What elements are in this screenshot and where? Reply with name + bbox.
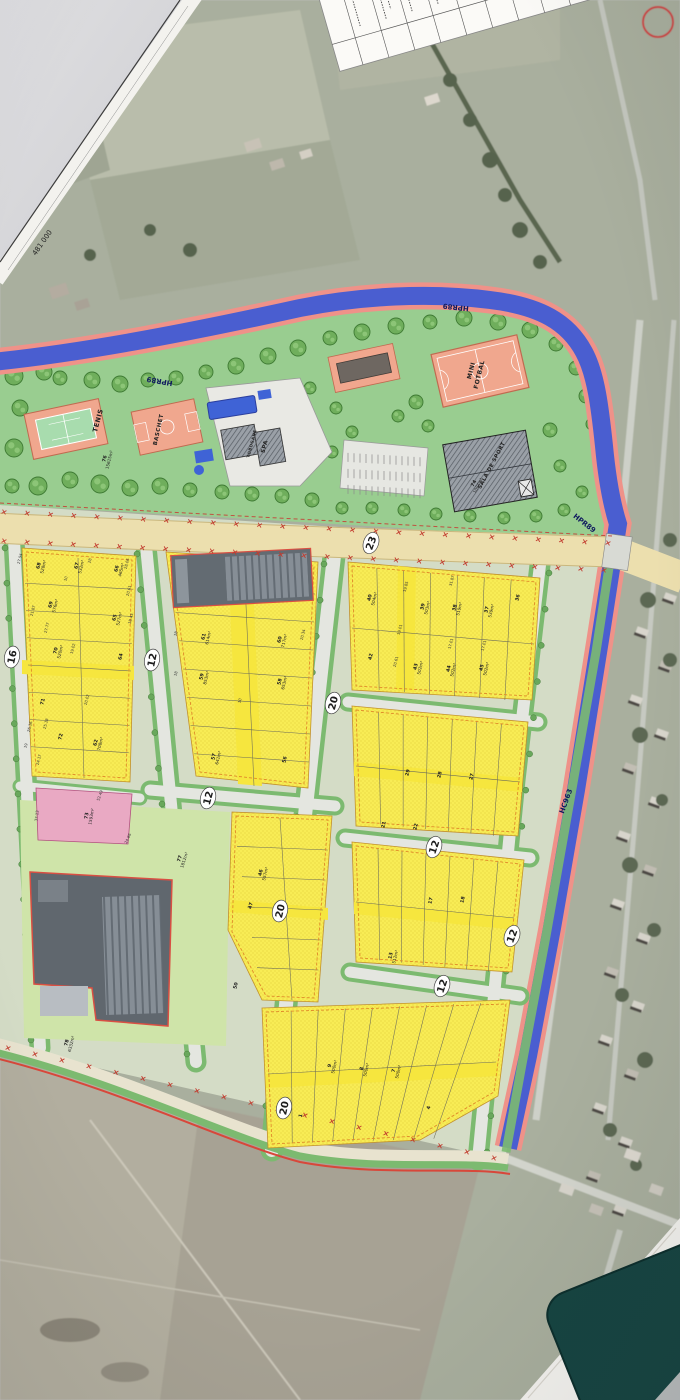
site-plan-photo: HPR89HPR89HPR89HC963TENISBASCHETTOBOGANE…: [0, 0, 680, 1400]
photo-vignette: [0, 0, 680, 1400]
